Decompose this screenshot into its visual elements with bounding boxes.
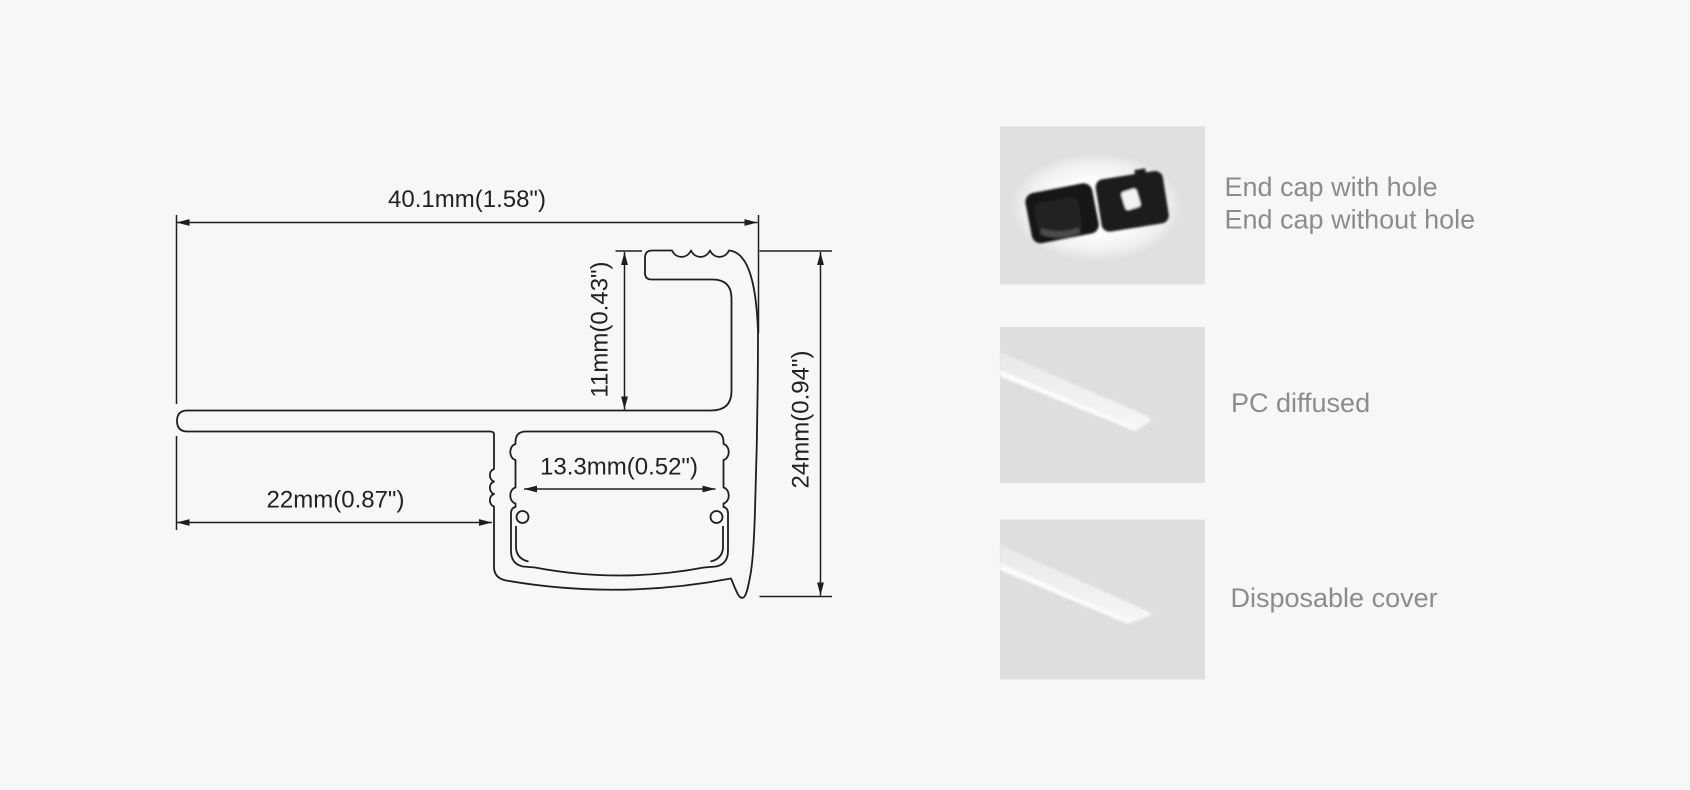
svg-text:40.1mm(1.58"): 40.1mm(1.58") xyxy=(388,186,546,213)
svg-text:11mm(0.43"): 11mm(0.43") xyxy=(587,261,614,397)
svg-text:Disposable cover: Disposable cover xyxy=(1231,583,1438,613)
svg-text:24mm(0.94"): 24mm(0.94") xyxy=(788,351,815,489)
svg-text:End cap with hole: End cap with hole xyxy=(1225,172,1438,202)
svg-text:End cap without hole: End cap without hole xyxy=(1225,205,1476,235)
svg-text:13.3mm(0.52"): 13.3mm(0.52") xyxy=(540,454,698,481)
svg-text:22mm(0.87"): 22mm(0.87") xyxy=(267,487,405,514)
svg-text:PC diffused: PC diffused xyxy=(1231,388,1370,418)
